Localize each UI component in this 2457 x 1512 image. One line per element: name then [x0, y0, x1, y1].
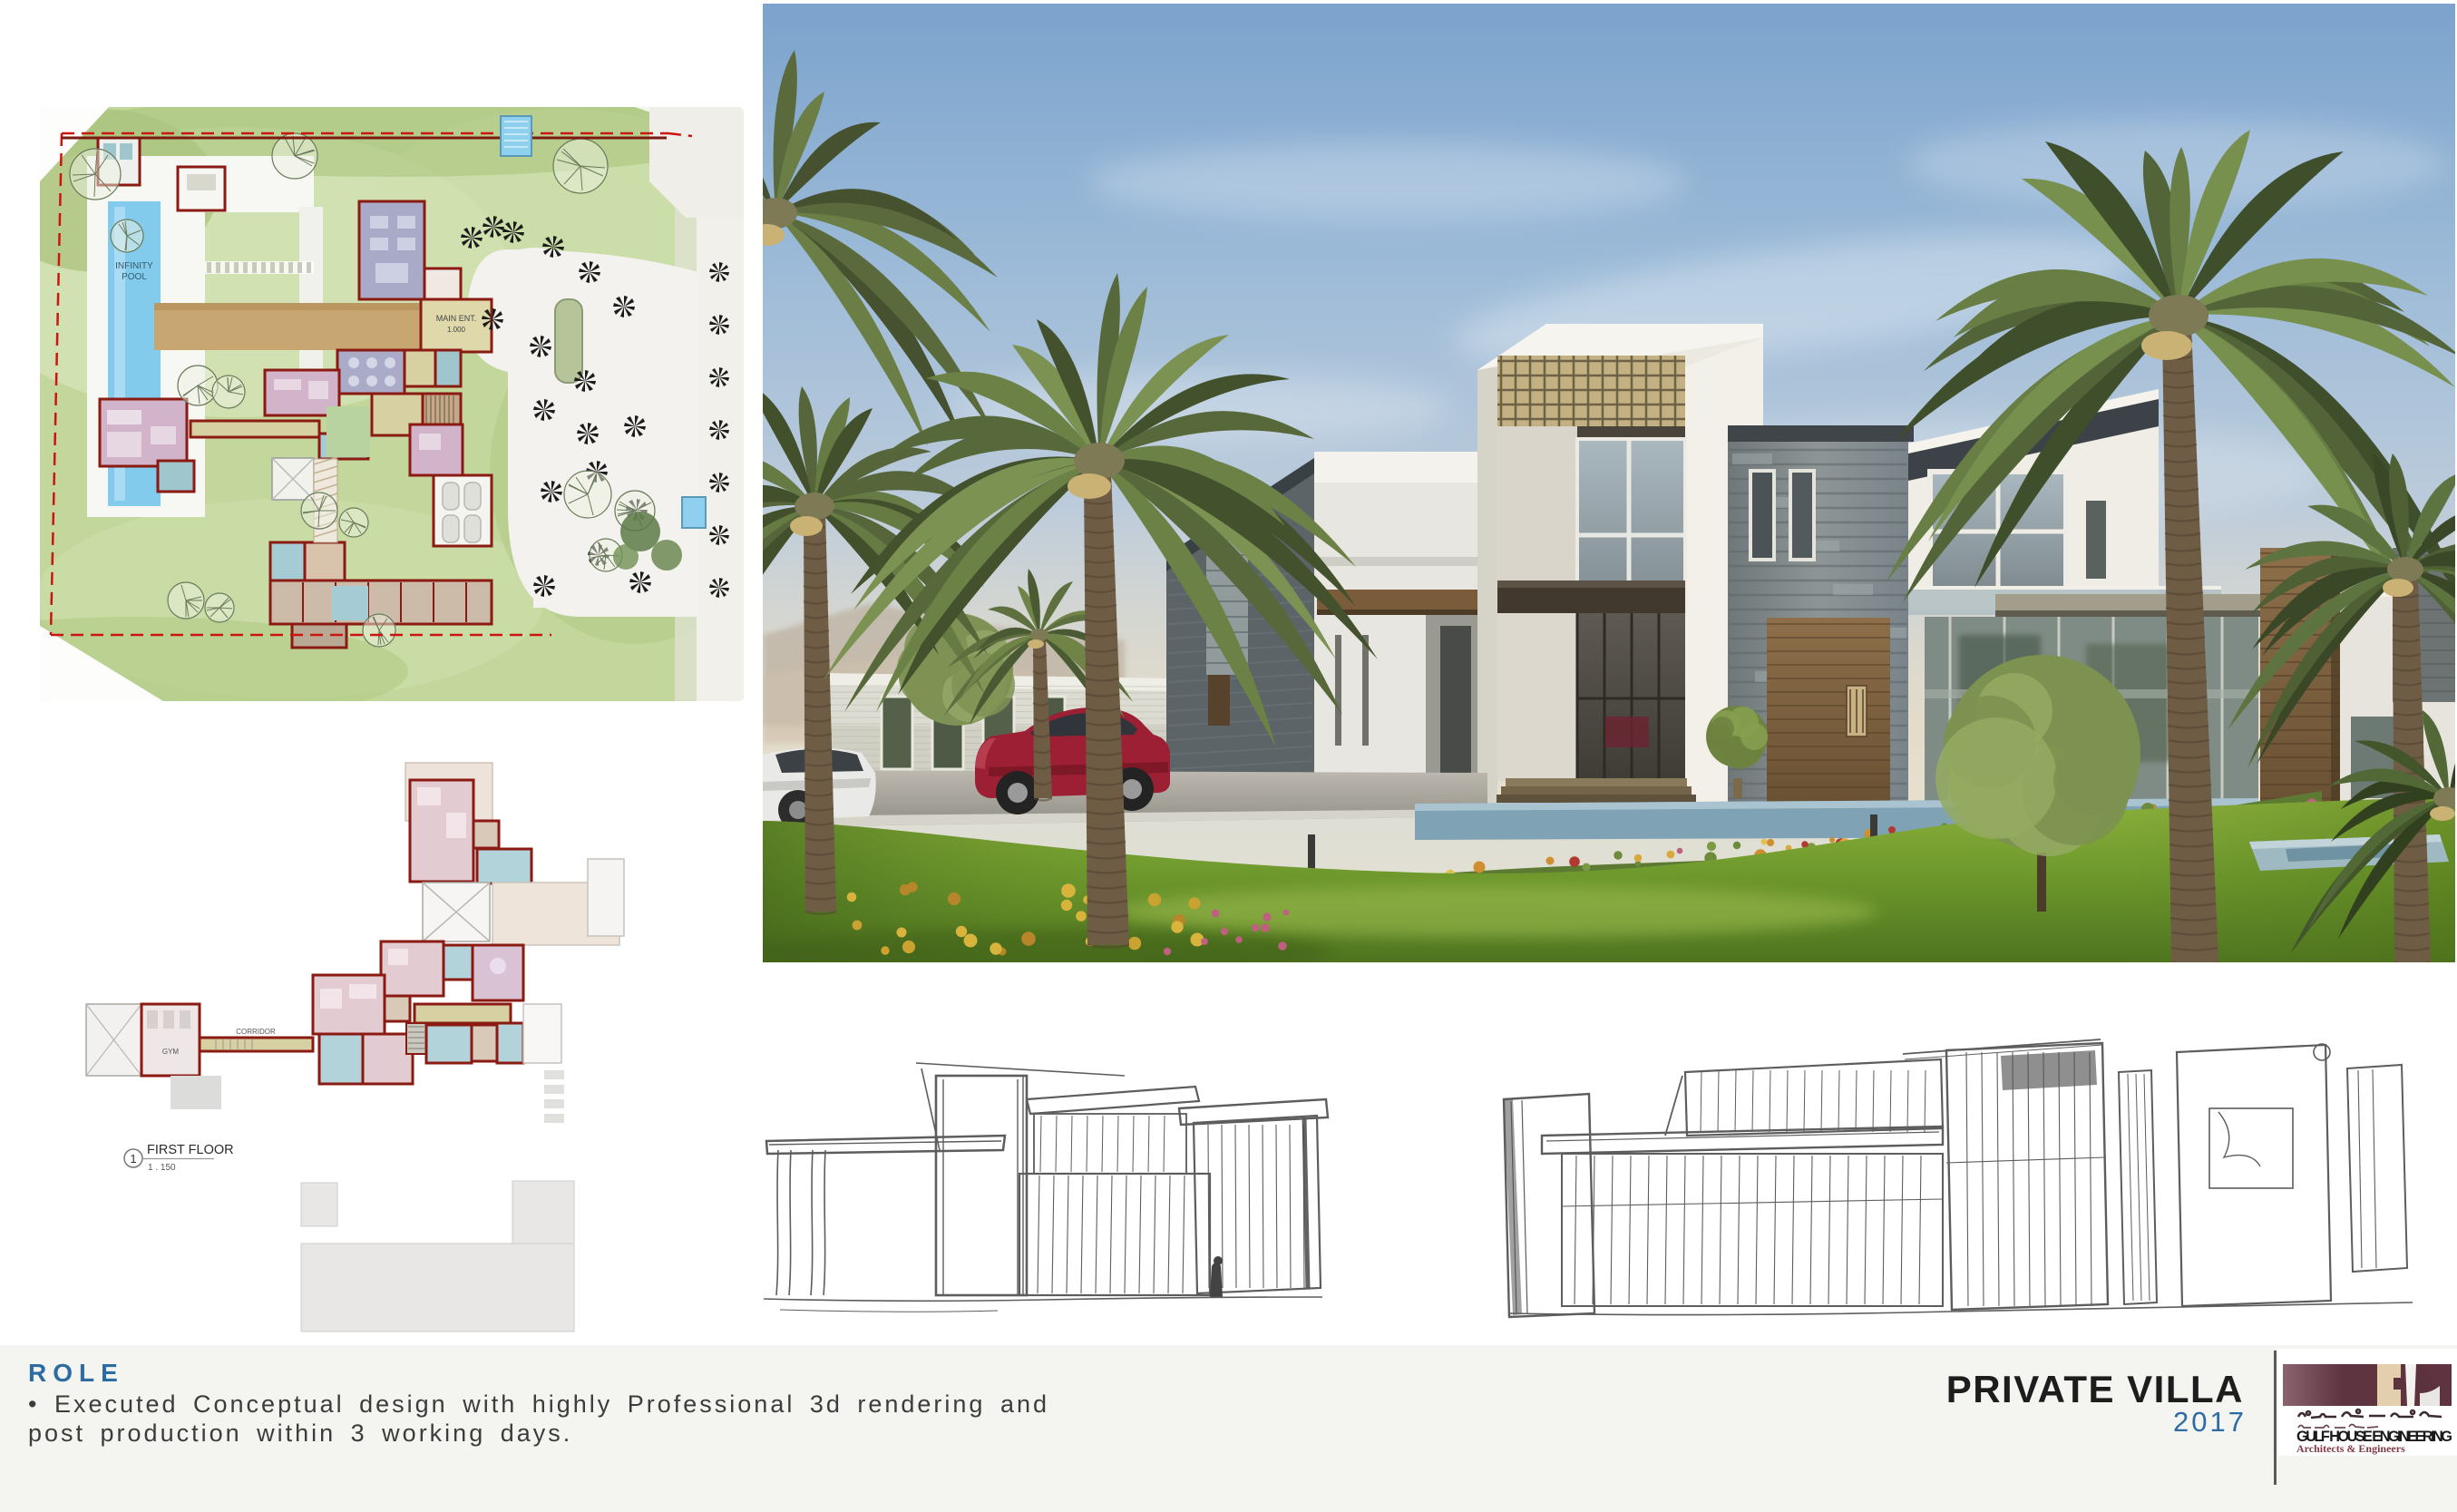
svg-text:INFINITY: INFINITY	[115, 261, 153, 271]
svg-text:GYM: GYM	[162, 1048, 180, 1056]
svg-text:1 . 150: 1 . 150	[148, 1163, 176, 1173]
svg-text:Architects & Engineers: Architects & Engineers	[2296, 1442, 2405, 1455]
svg-text:• Executed Conceptual design w: • Executed Conceptual design with highly…	[28, 1390, 1049, 1418]
svg-text:2017: 2017	[2173, 1406, 2247, 1438]
svg-text:FIRST FLOOR: FIRST FLOOR	[147, 1143, 234, 1157]
svg-text:POOL: POOL	[122, 272, 147, 282]
svg-text:PRIVATE VILLA: PRIVATE VILLA	[1946, 1368, 2244, 1410]
svg-text:1.000: 1.000	[447, 326, 466, 334]
svg-text:1: 1	[130, 1152, 136, 1166]
svg-text:MAIN ENT.: MAIN ENT.	[436, 314, 477, 323]
svg-text:CORRIDOR: CORRIDOR	[236, 1028, 276, 1036]
svg-text:ROLE: ROLE	[28, 1359, 124, 1387]
svg-text:post production within 3 worki: post production within 3 working days.	[28, 1419, 572, 1447]
